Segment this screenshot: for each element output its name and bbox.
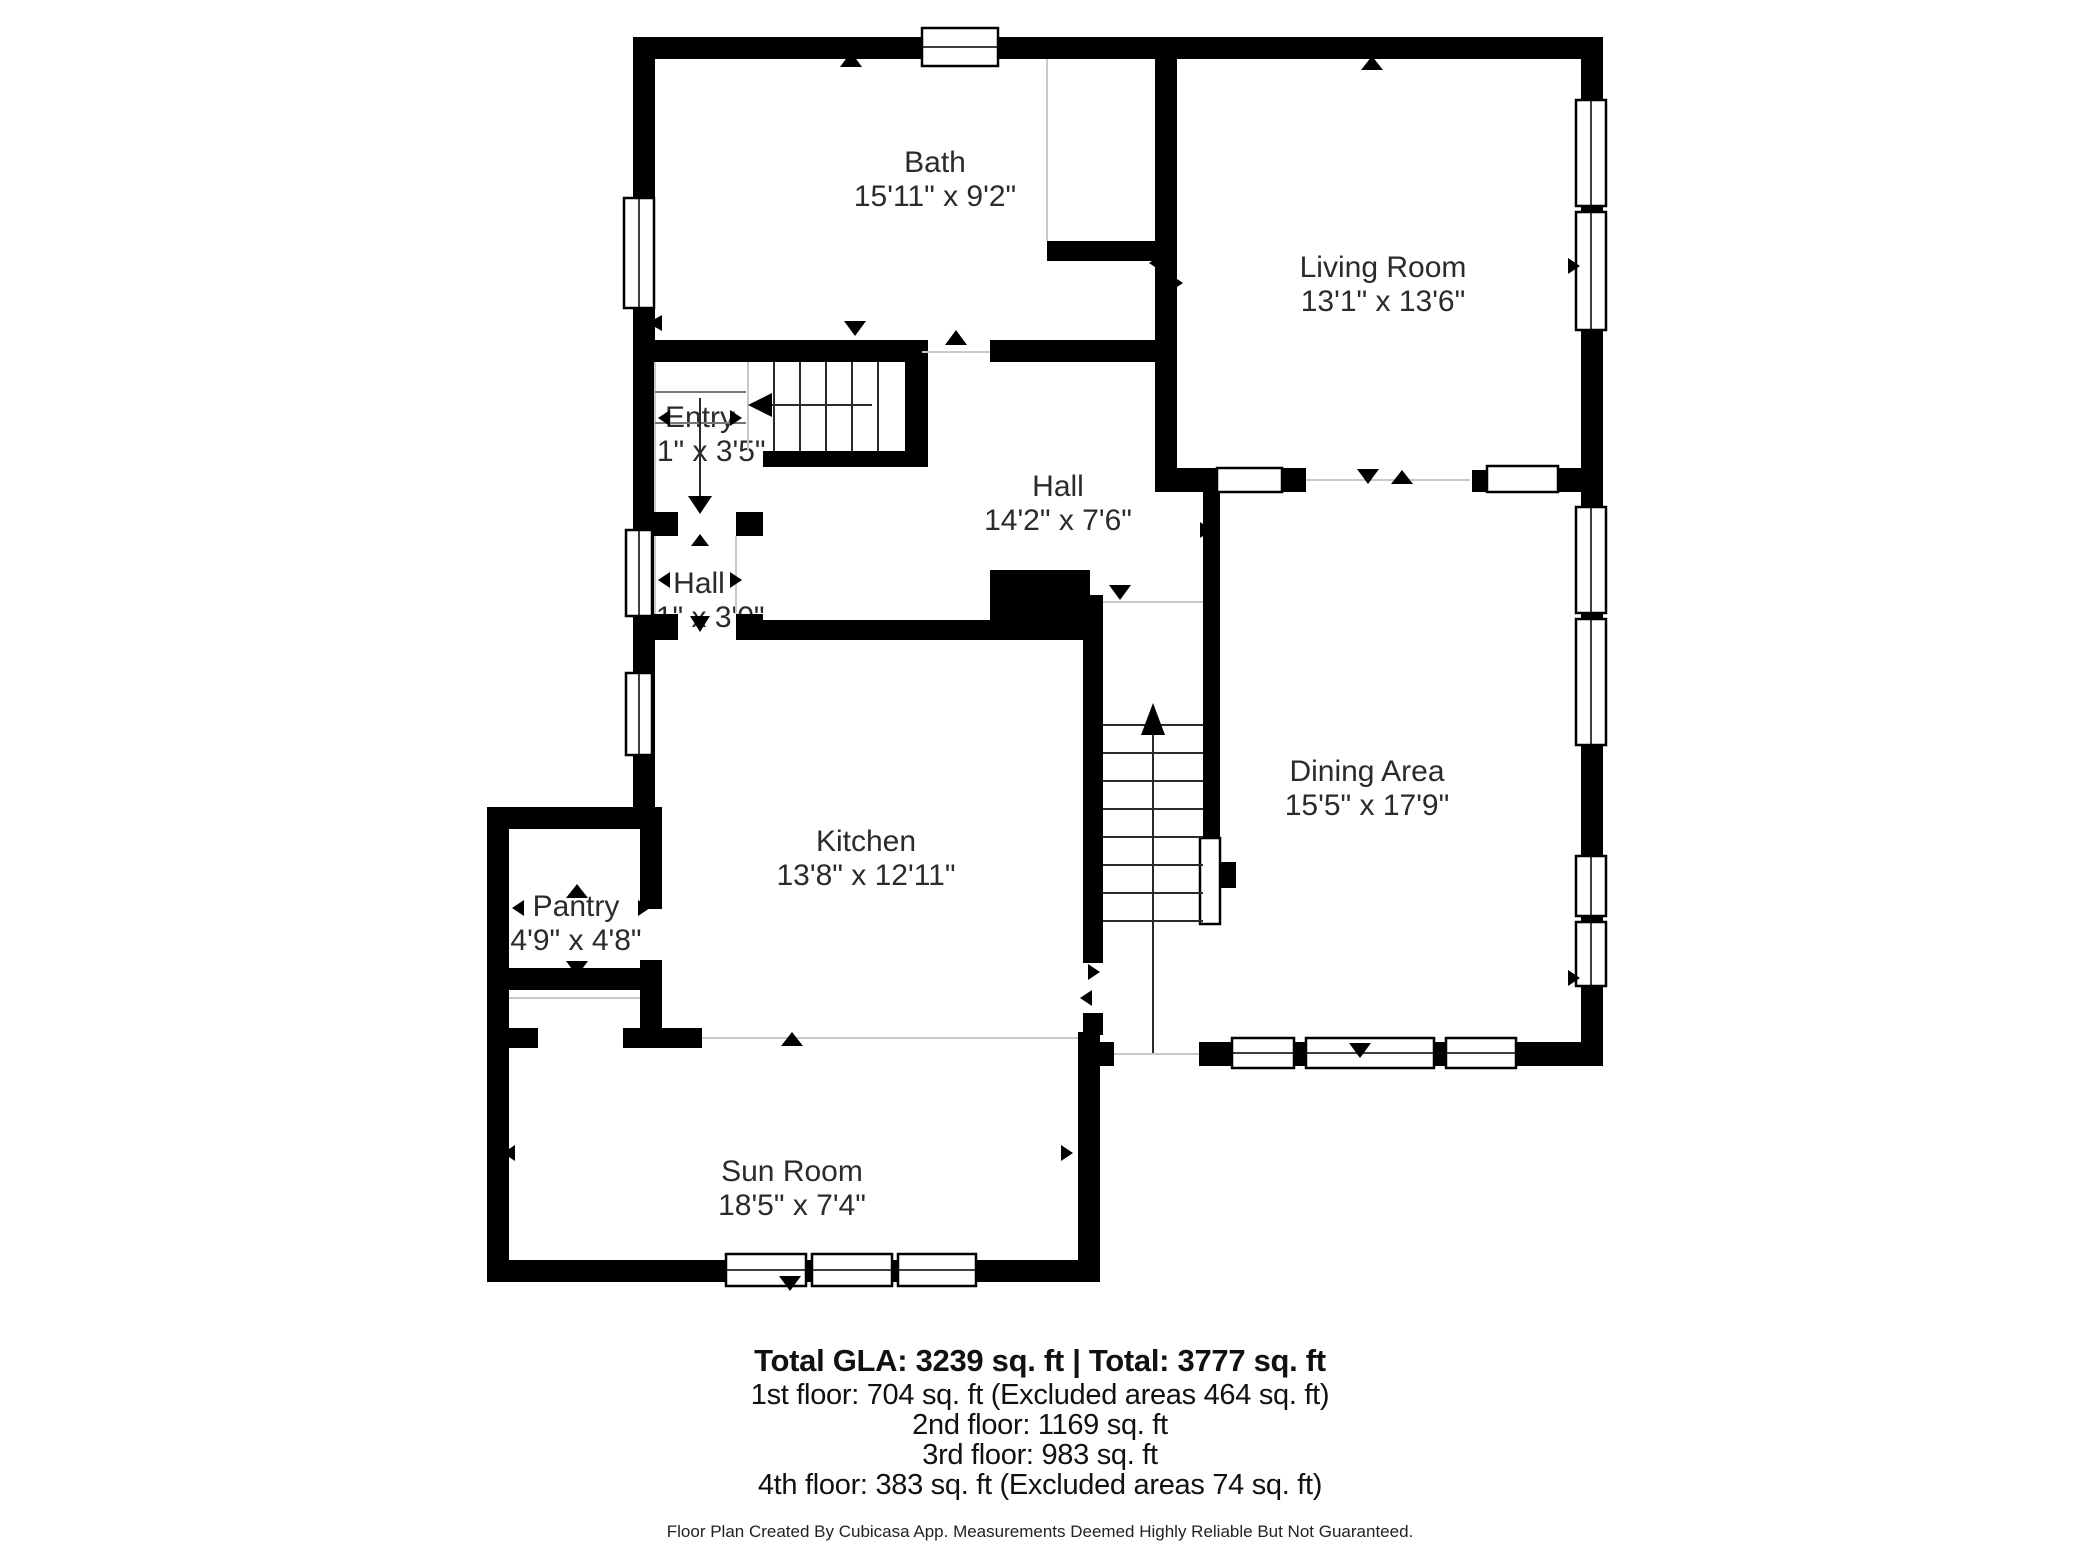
room-dims: 15'5" x 17'9" [1285,789,1450,823]
room-name: Entry [634,401,765,435]
dining-right-arrow-icon [1568,970,1580,986]
living-top-arrow-icon [1361,56,1383,70]
hall-landing-arrow-icon [1109,585,1131,600]
kitchen-door-arrow-icon [1088,964,1100,980]
room-label-entry: Entry 3'1" x 3'5" [634,401,765,469]
bath-top-arrow-icon [840,52,862,67]
sunroom-left-arrow-icon [503,1145,515,1161]
room-name: Hall [984,470,1132,504]
walls [487,37,1603,1282]
entry-direction-arrow-icon [688,496,712,514]
room-label-dining-area: Dining Area 15'5" x 17'9" [1285,755,1450,823]
room-dims: 14'2" x 7'6" [984,504,1132,538]
room-dims: 15'11" x 9'2" [854,180,1016,214]
sunroom-right-arrow-icon [1061,1145,1073,1161]
living-dining-arrow-down-icon [1357,469,1379,484]
room-label-hall-small: Hall 3'1" x 3'0" [633,567,764,635]
door-arrows [503,52,1580,1291]
dining-window-arrow-icon [1349,1043,1371,1058]
bath-left-arrow-icon [648,315,662,331]
living-dining-arrow-up-icon [1391,470,1413,484]
room-name: Hall [633,567,764,601]
disclaimer-text: Floor Plan Created By Cubicasa App. Meas… [0,1522,2080,1542]
room-name: Dining Area [1285,755,1450,789]
room-dims: 18'5" x 7'4" [718,1189,866,1223]
room-label-pantry: Pantry 4'9" x 4'8" [510,890,641,958]
stairs-upper [756,362,878,451]
room-label-kitchen: Kitchen 13'8" x 12'11" [777,825,956,893]
floor-line-2: 2nd floor: 1169 sq. ft [0,1410,2080,1440]
bath-door-arrow-icon [945,330,967,345]
room-label-living-room: Living Room 13'1" x 13'6" [1300,251,1467,319]
room-label-hall-main: Hall 14'2" x 7'6" [984,470,1132,538]
floor-line-1: 1st floor: 704 sq. ft (Excluded areas 46… [0,1380,2080,1410]
room-name: Living Room [1300,251,1467,285]
total-gla-line: Total GLA: 3239 sq. ft | Total: 3777 sq.… [0,1342,2080,1380]
living-right-arrow-icon [1568,258,1580,274]
room-dims: 3'1" x 3'0" [633,601,764,635]
room-dims: 3'1" x 3'5" [634,435,765,469]
floor-line-3: 3rd floor: 983 sq. ft [0,1440,2080,1470]
floor-plan-svg [0,0,2080,1560]
room-name: Sun Room [718,1155,866,1189]
room-name: Bath [854,146,1016,180]
living-sep-arrow-right-icon [1171,275,1183,291]
hall-door-arrow-icon [1200,522,1212,538]
room-dims: 4'9" x 4'8" [510,924,641,958]
pantry-door-arrow-icon [566,961,588,976]
floor-plan: Bath 15'11" x 9'2" Living Room 13'1" x 1… [0,0,2080,1560]
bath-bottom-arrow-icon [844,321,866,336]
room-dims: 13'1" x 13'6" [1300,285,1467,319]
kitchen-door-arrow2-icon [1080,990,1092,1006]
entry-door-arrow-icon [691,534,709,546]
floor-line-4: 4th floor: 383 sq. ft (Excluded areas 74… [0,1470,2080,1500]
stairs-lower-direction-arrow-icon [1141,703,1165,735]
windows [624,28,1606,1286]
room-label-sun-room: Sun Room 18'5" x 7'4" [718,1155,866,1223]
room-name: Pantry [510,890,641,924]
room-name: Kitchen [777,825,956,859]
living-sep-arrow-left-icon [1149,255,1161,271]
sunroom-opening-arrow-icon [781,1032,803,1046]
summary-block: Total GLA: 3239 sq. ft | Total: 3777 sq.… [0,1342,2080,1542]
room-dims: 13'8" x 12'11" [777,859,956,893]
window-midlines [639,47,1591,1270]
room-label-bath: Bath 15'11" x 9'2" [854,146,1016,214]
sunroom-window-arrow-icon [779,1276,801,1291]
stairs-lower [1103,725,1203,1053]
